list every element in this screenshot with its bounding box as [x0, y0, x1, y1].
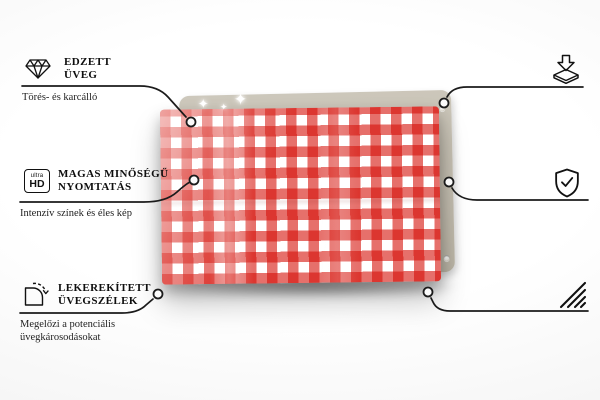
shield-check-icon — [552, 167, 582, 199]
pad-arrow-icon — [551, 53, 581, 86]
hatch-icon — [559, 281, 587, 309]
feature-subtitle: Intenzív színek és éles kép — [20, 208, 132, 221]
feature-subtitle: Törés- és karcálló — [22, 92, 97, 105]
feature-title: MAGAS MINŐSÉGŰ NYOMTATÁS — [58, 168, 168, 194]
diamond-icon — [24, 57, 52, 81]
feature-subtitle: Megelőzi a potenciális üvegkárosodásokat — [20, 319, 115, 344]
rounded-corner-icon — [22, 281, 50, 309]
ultra-hd-icon: ultra HD — [24, 169, 50, 193]
feature-title: LEKEREKÍTETT ÜVEGSZÉLEK — [58, 282, 151, 308]
feature-title: EDZETT ÜVEG — [64, 56, 111, 82]
